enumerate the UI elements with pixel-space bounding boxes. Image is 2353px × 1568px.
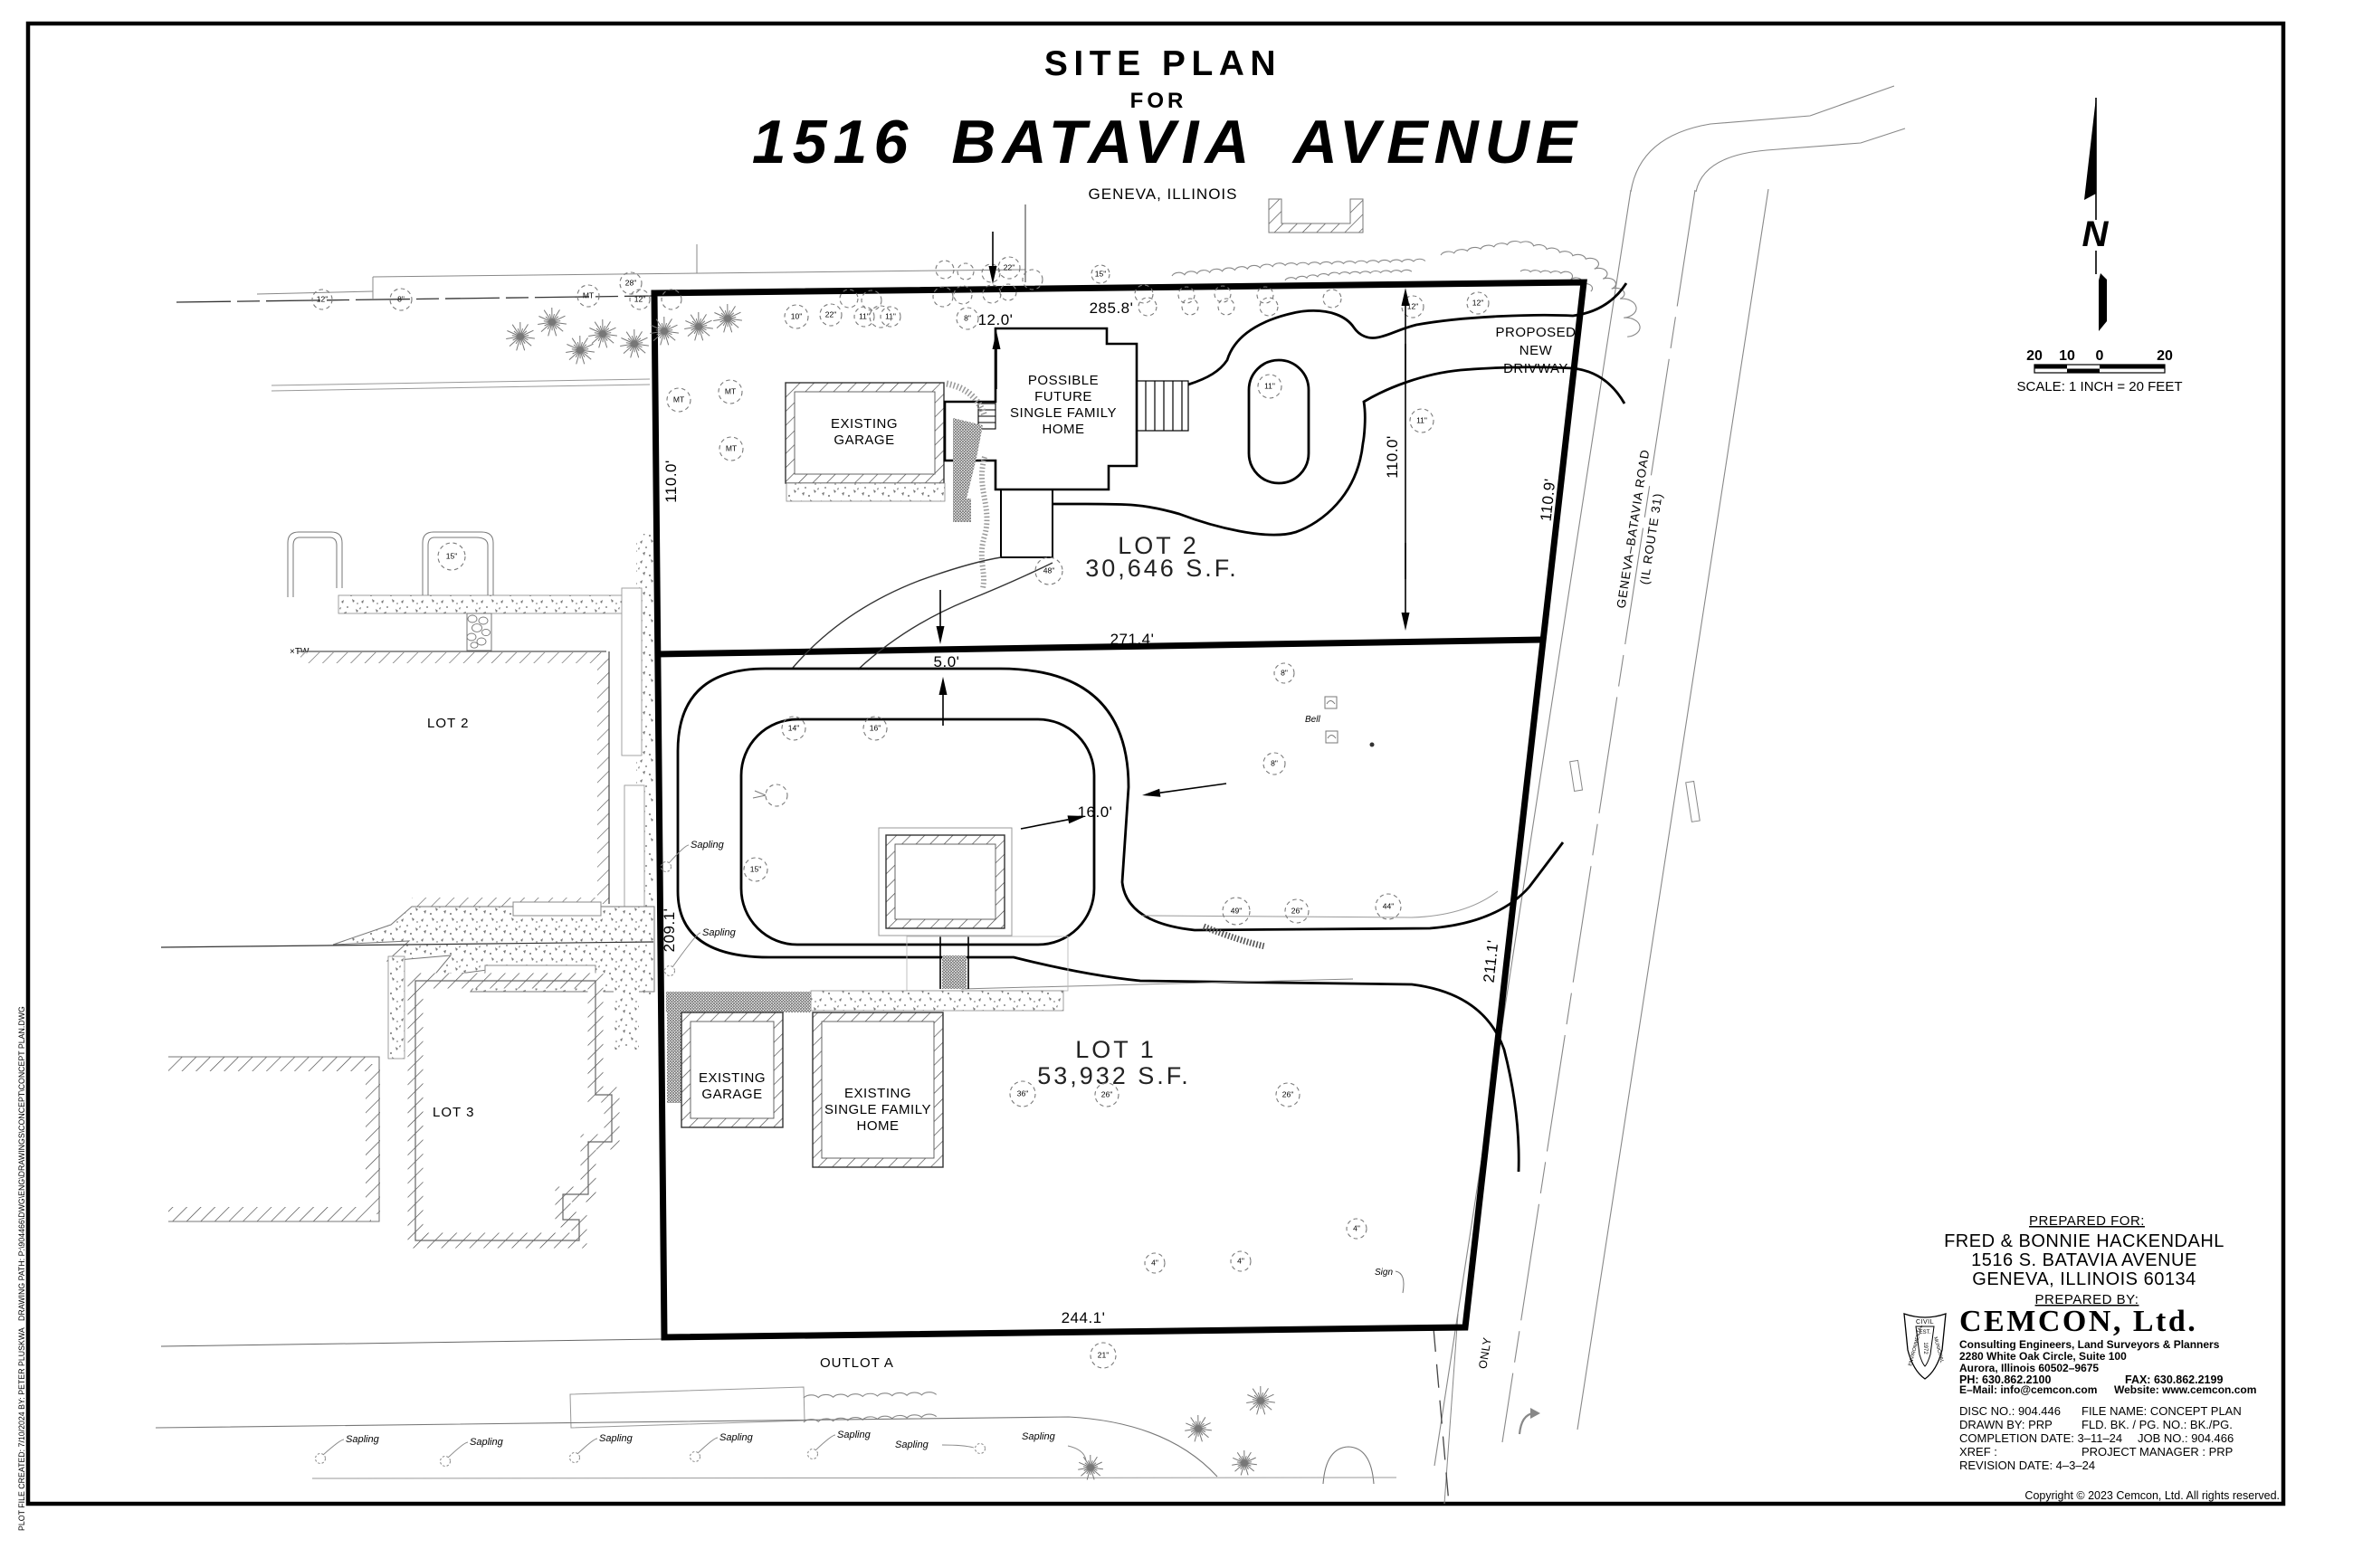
svg-text:26": 26" xyxy=(1282,1090,1293,1099)
svg-text:Bell: Bell xyxy=(1305,715,1320,725)
svg-text:GARAGE: GARAGE xyxy=(701,1087,762,1102)
svg-text:Sapling: Sapling xyxy=(719,1432,754,1443)
svg-text:12.0': 12.0' xyxy=(978,311,1014,328)
svg-text:8": 8" xyxy=(1271,759,1278,768)
svg-text:Sapling: Sapling xyxy=(599,1433,633,1444)
svg-text:JOB NO.: 904.466: JOB NO.: 904.466 xyxy=(2138,1431,2234,1445)
svg-text:20: 20 xyxy=(2026,348,2043,364)
svg-text:15": 15" xyxy=(750,865,761,874)
svg-text:2280 White Oak Circle, Sui: 2280 White Oak Circle, Suite 100 xyxy=(1959,1350,2127,1363)
svg-text:Sapling: Sapling xyxy=(1022,1431,1056,1442)
svg-text:DRAWN BY: PRP: DRAWN BY: PRP xyxy=(1959,1418,2053,1431)
svg-text:271.4': 271.4' xyxy=(1110,631,1155,648)
svg-text:LOT 3: LOT 3 xyxy=(433,1105,474,1120)
svg-text:14": 14" xyxy=(788,724,799,733)
svg-text:20: 20 xyxy=(2157,348,2173,364)
svg-text:REVISION DATE: 4–3–24: REVISION DATE: 4–3–24 xyxy=(1959,1459,2095,1472)
svg-text:26": 26" xyxy=(1101,1090,1112,1099)
svg-text:21": 21" xyxy=(1098,1351,1109,1360)
svg-text:12": 12" xyxy=(634,295,645,304)
svg-text:209.1': 209.1' xyxy=(661,908,678,953)
svg-text:10: 10 xyxy=(2059,348,2075,364)
svg-text:FLD. BK. / PG. NO.: BK./P: FLD. BK. / PG. NO.: BK./PG. xyxy=(2081,1418,2233,1431)
svg-text:53,932 S.F.: 53,932 S.F. xyxy=(1037,1062,1191,1089)
svg-text:4": 4" xyxy=(1353,1224,1360,1233)
svg-text:1516 S. BATAVIA AVENUE: 1516 S. BATAVIA AVENUE xyxy=(1971,1250,2197,1270)
svg-text:48": 48" xyxy=(1043,566,1054,575)
svg-text:44": 44" xyxy=(1383,902,1394,911)
svg-text:OUTLOT A: OUTLOT A xyxy=(820,1355,894,1371)
svg-text:MT: MT xyxy=(673,395,684,404)
svg-text:DISC NO.: 904.446: DISC NO.: 904.446 xyxy=(1959,1404,2061,1418)
svg-text:CEMCON, Ltd.: CEMCON, Ltd. xyxy=(1959,1305,2197,1338)
svg-text:PROJECT MANAGER : PRP: PROJECT MANAGER : PRP xyxy=(2081,1445,2233,1459)
svg-text:E–Mail: info@cemcon.com: E–Mail: info@cemcon.com xyxy=(1959,1383,2097,1396)
svg-text:5.0': 5.0' xyxy=(934,653,960,670)
svg-text:DRAWING PATH: P:\904466\DWG\: DRAWING PATH: P:\904466\DWG\ENG\DRAWINGS… xyxy=(17,1006,26,1321)
svg-text:16.0': 16.0' xyxy=(1078,803,1113,821)
svg-text:NEW: NEW xyxy=(1519,343,1553,358)
svg-text:SCALE: 1 INCH = 20 FEET: SCALE: 1 INCH = 20 FEET xyxy=(2017,379,2183,394)
svg-text:EXISTING: EXISTING xyxy=(831,416,898,432)
svg-text:XREF :: XREF : xyxy=(1959,1445,1997,1459)
svg-text:MT: MT xyxy=(725,387,736,396)
svg-text:36": 36" xyxy=(1017,1089,1028,1098)
svg-text:FILE NAME: CONCEPT PLAN: FILE NAME: CONCEPT PLAN xyxy=(2081,1404,2242,1418)
svg-text:Sapling: Sapling xyxy=(346,1434,380,1445)
svg-text:Sign: Sign xyxy=(1375,1268,1393,1278)
svg-text:EXISTING: EXISTING xyxy=(699,1070,766,1086)
svg-text:4": 4" xyxy=(1237,1257,1244,1266)
svg-text:PLOT FILE CREATED: 7/10/2024 B: PLOT FILE CREATED: 7/10/2024 BY: PETER P… xyxy=(17,1327,26,1531)
svg-text:SITE PLAN: SITE PLAN xyxy=(1044,44,1281,83)
svg-text:12": 12" xyxy=(1472,299,1483,308)
svg-text:0: 0 xyxy=(2096,348,2104,364)
svg-text:Website: www.cemcon.com: Website: www.cemcon.com xyxy=(2114,1383,2256,1396)
svg-text:POSSIBLE: POSSIBLE xyxy=(1028,373,1099,388)
svg-text:SINGLE FAMILY: SINGLE FAMILY xyxy=(824,1102,931,1117)
svg-text:MT: MT xyxy=(726,444,737,453)
svg-text:PREPARED FOR:: PREPARED FOR: xyxy=(2029,1213,2145,1229)
svg-text:HOME: HOME xyxy=(857,1118,900,1134)
svg-text:FUTURE: FUTURE xyxy=(1034,389,1092,404)
svg-text:PROPOSED: PROPOSED xyxy=(1495,325,1576,340)
svg-text:N: N xyxy=(2082,214,2110,254)
svg-text:Sapling: Sapling xyxy=(691,840,725,851)
svg-text:11": 11" xyxy=(1264,382,1275,391)
svg-text:LOT 1: LOT 1 xyxy=(1075,1036,1157,1063)
svg-text:GENEVA, ILLINOIS: GENEVA, ILLINOIS xyxy=(1089,185,1238,203)
svg-text:COMPLETION DATE: 3–11–24: COMPLETION DATE: 3–11–24 xyxy=(1959,1431,2122,1445)
svg-text:22": 22" xyxy=(1004,263,1015,272)
svg-text:DRIVWAY: DRIVWAY xyxy=(1503,361,1568,376)
svg-text:FRED & BONNIE HACKENDAHL: FRED & BONNIE HACKENDAHL xyxy=(1944,1231,2224,1251)
svg-text:1516 BATAVIA AVENUE: 1516 BATAVIA AVENUE xyxy=(752,108,1583,176)
svg-text:GENEVA, ILLINOIS 60134: GENEVA, ILLINOIS 60134 xyxy=(1972,1269,2196,1289)
svg-text:12": 12" xyxy=(317,295,328,304)
svg-text:22": 22" xyxy=(825,310,836,319)
svg-text:SINGLE FAMILY: SINGLE FAMILY xyxy=(1010,405,1117,421)
svg-text:EXISTING: EXISTING xyxy=(844,1086,911,1101)
svg-text:110.0': 110.0' xyxy=(662,460,680,503)
svg-text:Sapling: Sapling xyxy=(470,1437,504,1448)
svg-text:Sapling: Sapling xyxy=(895,1440,929,1450)
svg-text:285.8': 285.8' xyxy=(1090,299,1134,317)
svg-text:11": 11" xyxy=(885,312,896,321)
svg-text:Consulting Engineers, Land: Consulting Engineers, Land Surveyors & P… xyxy=(1959,1338,2220,1351)
svg-text:Copyright © 2023 Cemcon, L: Copyright © 2023 Cemcon, Ltd. All rights… xyxy=(2024,1489,2280,1502)
svg-text:26": 26" xyxy=(1291,907,1302,916)
svg-text:GARAGE: GARAGE xyxy=(834,432,894,448)
svg-text:4": 4" xyxy=(1151,1259,1158,1268)
svg-text:HOME: HOME xyxy=(1043,422,1085,437)
svg-text:8": 8" xyxy=(964,314,971,323)
svg-text:Sapling: Sapling xyxy=(702,927,737,938)
svg-text:1972: 1972 xyxy=(1922,1342,1928,1354)
svg-text:244.1': 244.1' xyxy=(1062,1309,1106,1326)
svg-text:11": 11" xyxy=(1416,416,1427,425)
svg-text:10": 10" xyxy=(791,312,802,321)
svg-text:30,646 S.F.: 30,646 S.F. xyxy=(1085,555,1239,582)
svg-text:11": 11" xyxy=(859,312,870,321)
svg-text:110.0': 110.0' xyxy=(1384,435,1401,479)
svg-text:Sapling: Sapling xyxy=(837,1430,872,1440)
svg-text:15": 15" xyxy=(446,552,457,561)
svg-text:49": 49" xyxy=(1231,907,1242,916)
svg-text:16": 16" xyxy=(870,724,881,733)
svg-text:Aurora, Illinois 60502–967: Aurora, Illinois 60502–9675 xyxy=(1959,1362,2099,1374)
svg-text:15": 15" xyxy=(1095,270,1106,279)
svg-text:8": 8" xyxy=(1281,669,1288,678)
svg-text:LOT 2: LOT 2 xyxy=(427,716,469,731)
svg-text:8": 8" xyxy=(397,295,405,304)
svg-text:28": 28" xyxy=(625,279,636,288)
svg-text:MT: MT xyxy=(583,291,594,300)
